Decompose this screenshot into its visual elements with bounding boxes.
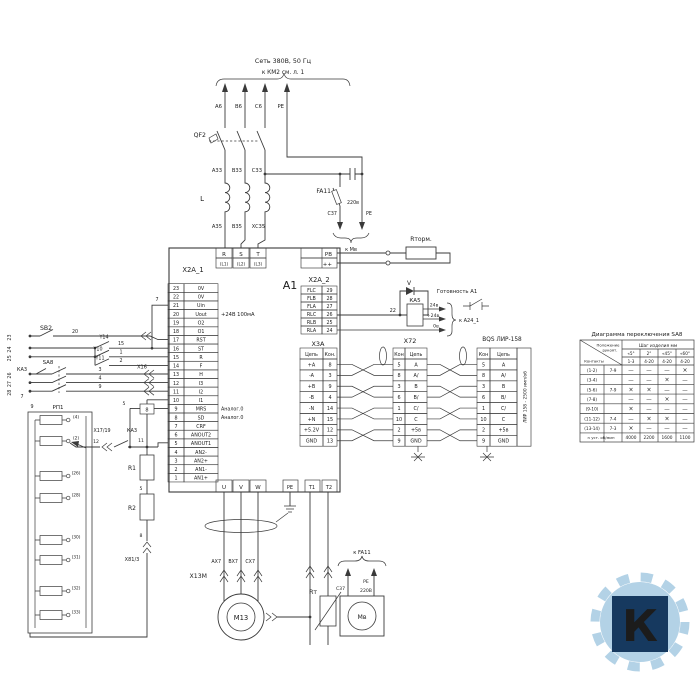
pin-number: 10 xyxy=(173,398,179,404)
wire-label: 9 xyxy=(98,384,101,390)
sa8-rpm-value: 1100 xyxy=(680,435,691,441)
pin-label: O2 xyxy=(198,320,205,326)
pin-number: 18 xyxy=(173,329,179,335)
terminal-label: W xyxy=(255,485,261,491)
pin-number: 6 xyxy=(174,433,177,439)
encoder-title: BQS ЛИР-158 xyxy=(482,337,522,343)
terminal-label: V xyxy=(239,485,243,491)
sa8-mark: — xyxy=(682,426,688,432)
sa8-mark: × xyxy=(664,415,669,422)
rp1-terminal-label: (30) xyxy=(72,535,81,541)
annotation: +24В 100мА xyxy=(221,312,255,318)
wire-label: PE xyxy=(366,211,372,217)
cell-value: 2 xyxy=(397,428,400,434)
col-header: Цепь xyxy=(410,352,423,358)
pin-label: ANOUT2 xyxy=(191,433,211,439)
cell-value: C xyxy=(414,417,418,423)
rp1-terminal xyxy=(66,558,70,562)
terminal-label: U xyxy=(222,485,226,491)
pin-label: I2 xyxy=(199,389,203,395)
cell-value: 8 xyxy=(482,373,485,379)
cell-value: 1 xyxy=(482,406,485,412)
relay-contact-label: КА3 xyxy=(17,367,27,373)
annotation: Аналог.0 xyxy=(221,415,243,421)
resistor-r2 xyxy=(140,494,154,520)
wire-label: В35 xyxy=(232,224,242,230)
wire-label: С37 xyxy=(328,211,337,217)
x72-title: X72 xyxy=(404,337,417,345)
x3a-title: X3A xyxy=(311,340,325,348)
wire-label: 5 xyxy=(123,401,126,407)
dest-label: к Мв xyxy=(345,247,357,253)
wire-label: PE xyxy=(363,579,369,585)
contact-label: Y10 xyxy=(92,347,102,353)
sa8-mark: × xyxy=(628,386,633,393)
wire-label: PE xyxy=(277,104,284,110)
sa8-mark: — xyxy=(664,387,670,393)
cell-value: 2 xyxy=(482,428,485,434)
pin-label: Uin xyxy=(197,303,205,309)
sa8-header: Контакты xyxy=(584,359,604,364)
rail-number: 25 xyxy=(7,355,13,361)
wire-label: 5 xyxy=(140,486,143,492)
terminal-label: PE xyxy=(287,485,293,491)
pin-number: 12 xyxy=(173,381,179,387)
dest-label: к А24_1 xyxy=(459,318,479,324)
cell-value: 10 xyxy=(480,417,486,423)
rp1-terminal xyxy=(66,418,70,422)
cell-value: 5 xyxy=(482,362,485,368)
cell-value: +A xyxy=(308,362,316,368)
sa8-mark: — xyxy=(682,416,688,422)
cell-value: C/ xyxy=(501,406,506,412)
wire-label: 1 xyxy=(119,350,122,356)
logo-letter: К xyxy=(622,601,658,652)
cell-value: +N xyxy=(308,417,316,423)
cell-value: -N xyxy=(309,406,315,412)
pin-number: 20 xyxy=(173,312,179,318)
col-header: Кон. xyxy=(324,352,335,358)
cell-value: 9 xyxy=(328,384,331,390)
col-header: Цепь xyxy=(497,352,510,358)
pin-number: 4 xyxy=(174,450,177,456)
cell-value: -B xyxy=(309,395,315,401)
inductor-label: L xyxy=(200,195,204,203)
pin-number: 5 xyxy=(174,441,177,447)
wire-label: С37 xyxy=(336,586,345,592)
sa8-mark: — xyxy=(628,378,634,384)
connector-label: X17/19 xyxy=(93,428,110,434)
cell-value: GND xyxy=(410,439,421,445)
cell-value: 6 xyxy=(397,395,400,401)
wire-label: В33 xyxy=(232,168,242,174)
cell-value: 13 xyxy=(327,439,333,445)
pin-number: 23 xyxy=(173,286,179,292)
sa8-mark: × xyxy=(628,425,633,432)
pin-number: 25 xyxy=(326,320,332,326)
sa8-col-range: 1-3 xyxy=(628,359,635,364)
cell-value: +5.2V xyxy=(304,428,320,434)
terminal-label: T1 xyxy=(308,485,315,491)
relay-label: КА5 xyxy=(409,298,421,304)
sa8-mark: — xyxy=(646,368,652,374)
sa8-mark: — xyxy=(646,407,652,413)
wire-label: 3 xyxy=(98,367,101,373)
sa8-rpm-value: 2200 xyxy=(644,435,655,441)
wire-label: +24в xyxy=(427,313,440,319)
relay-contact-label: КА3 xyxy=(127,428,137,434)
terminal-label: PB xyxy=(325,252,332,258)
sa8-mark: — xyxy=(682,407,688,413)
sa8-col-header: «45° xyxy=(662,351,672,356)
cell-value: 3 xyxy=(482,384,485,390)
sa8-mark: — xyxy=(628,416,634,422)
cell-value: 9 xyxy=(397,439,400,445)
cell-value: 15 xyxy=(327,417,333,423)
pin-number: 21 xyxy=(173,303,179,309)
wire-label: 24в xyxy=(430,303,439,309)
cell-value: C xyxy=(502,417,506,423)
sa8-mark: — xyxy=(682,378,688,384)
rail-number: 23 xyxy=(7,334,13,340)
pin-label: I3 xyxy=(199,381,203,387)
wire-label: ВХ7 xyxy=(228,559,238,565)
fuse-label: FA11 xyxy=(316,188,331,195)
sa8-mark: — xyxy=(646,426,652,432)
cell-value: 3 xyxy=(328,373,331,379)
wire-label: ХС35 xyxy=(252,224,265,230)
cell-value: GND xyxy=(498,439,509,445)
cell-value: B/ xyxy=(501,395,506,401)
terminal-circle xyxy=(386,261,390,265)
sa8-header: Шаг изделия мм xyxy=(639,343,677,349)
sa8-col-header: «60° xyxy=(680,351,690,356)
ready-label: Готовность А1 xyxy=(437,289,477,295)
sa8-mark: × xyxy=(646,415,651,422)
sa8-contact: 7-3 xyxy=(610,426,617,431)
sa8-mark: × xyxy=(682,367,687,374)
contact-label: Y11 xyxy=(94,356,104,362)
schematic-canvas: Сеть 380В, 50 Гц к КМ2 см. л. 1 А6 В6 С6… xyxy=(0,0,700,700)
terminal-label: ++ xyxy=(323,262,333,268)
rp1-terminal-label: (33) xyxy=(72,610,81,616)
sa8-title: Диаграмма переключения SA8 xyxy=(592,332,683,338)
pin-number: 22 xyxy=(173,295,179,301)
rp1-terminal-label: (4) xyxy=(73,415,79,421)
sa8-contact: (13-14) xyxy=(584,426,600,431)
rp1-label: РП1 xyxy=(53,405,64,411)
sa8-mark: — xyxy=(664,368,670,374)
sa8-contact: (9-10) xyxy=(586,407,599,412)
pin-number: 24 xyxy=(326,328,332,334)
resistor-label: Rторм. xyxy=(410,236,432,243)
terminal-sublabel: (L3) xyxy=(254,262,263,267)
rp1-terminal xyxy=(66,439,70,443)
sa8-mark: — xyxy=(682,397,688,403)
sa8-col-header: 2° xyxy=(647,351,652,356)
sa8-col-header: «5° xyxy=(627,351,634,356)
pin-number: 26 xyxy=(326,312,332,318)
pin-number: 28 xyxy=(326,296,332,302)
sa8-col-range: 4-20 xyxy=(644,359,654,364)
switch-label: SA8 xyxy=(43,360,54,366)
wire-label: А33 xyxy=(212,168,222,174)
sa8-mark: — xyxy=(628,397,634,403)
brand-logo: К xyxy=(595,577,685,667)
cell-value: 12 xyxy=(327,428,333,434)
terminal-circle xyxy=(386,251,390,255)
resistor-label: R2 xyxy=(128,505,136,512)
cell-value: 9 xyxy=(482,439,485,445)
cell-value: 8 xyxy=(397,373,400,379)
sa8-contact: (3-4) xyxy=(587,378,597,383)
sa8-mark: × xyxy=(628,406,633,413)
cell-value: GND xyxy=(306,439,317,445)
voltage-label: 220В xyxy=(360,588,372,594)
pin-label: FLA xyxy=(307,304,317,310)
rail-number: 26 xyxy=(7,372,13,378)
pin-number: 29 xyxy=(326,288,332,294)
x2a2-title: X2A_2 xyxy=(308,276,329,284)
sa8-contact: 7-9 xyxy=(610,387,617,392)
pin-label: SD xyxy=(198,415,205,421)
pin-label: ANOUT1 xyxy=(191,441,211,447)
relay-coil xyxy=(407,304,423,326)
a1-label: А1 xyxy=(283,279,298,292)
pin-label: RST xyxy=(196,338,205,344)
cell-value: -A xyxy=(309,373,315,379)
rail-number: 27 xyxy=(7,381,13,387)
sa8-contact: (11-12) xyxy=(584,416,600,421)
pin-label: ST xyxy=(198,346,204,352)
pin-label: 0V xyxy=(198,295,205,301)
wire-label: СХ7 xyxy=(245,559,255,565)
rail-number: 24 xyxy=(7,346,13,352)
pin-number: 11 xyxy=(173,389,179,395)
resistor-label: R1 xyxy=(128,465,136,472)
thermistor-label: Rт xyxy=(309,589,317,596)
cell-value: +5в xyxy=(411,428,421,434)
wire-label: АХ7 xyxy=(211,559,221,565)
col-header: Кон xyxy=(479,352,488,358)
cell-value: 3 xyxy=(397,384,400,390)
sa8-mark: — xyxy=(682,387,688,393)
wire-label: 12 xyxy=(93,439,99,445)
sa8-contact: 7-9 xyxy=(610,368,617,373)
cell-value: 14 xyxy=(327,406,333,412)
contact-label: Y14 xyxy=(98,335,108,341)
sa8-rpm-label: n уст. об/мин xyxy=(588,435,615,440)
pin-label: I1 xyxy=(199,398,203,404)
pin-number: 17 xyxy=(173,338,179,344)
sa8-header: рукоят. xyxy=(603,348,618,353)
sa8-contact: (1-2) xyxy=(587,368,597,373)
rp1-terminal-label: (26) xyxy=(72,471,81,477)
pin-label: RLA xyxy=(307,328,317,334)
sa8-mark: × xyxy=(646,386,651,393)
breaker-label: QF2 xyxy=(194,132,206,139)
pin-label: O1 xyxy=(198,329,205,335)
dest-label: к FA11 xyxy=(353,550,370,556)
wire-label: 20 xyxy=(72,329,78,335)
sa8-rpm-value: 1600 xyxy=(662,435,673,441)
cell-value: +5в xyxy=(498,428,508,434)
sa8-mark: — xyxy=(646,397,652,403)
pin-number: 1 xyxy=(174,476,177,482)
sa8-col-range: 4-20 xyxy=(680,359,690,364)
pin-label: CRF xyxy=(196,424,206,430)
cell-value: 8 xyxy=(328,362,331,368)
cell-value: A/ xyxy=(414,373,419,379)
pin-label: FLC xyxy=(307,288,316,294)
cell-value: B/ xyxy=(413,395,418,401)
rail-number: 28 xyxy=(7,390,13,396)
connector-label: X81/3 xyxy=(125,557,140,563)
net-label: Сеть 380В, 50 Гц xyxy=(255,58,311,65)
rp1-terminal xyxy=(66,496,70,500)
pin-label: RLC xyxy=(307,312,317,318)
cell-value: C/ xyxy=(413,406,418,412)
pin-number: 16 xyxy=(173,346,179,352)
pin-number: 14 xyxy=(173,364,179,370)
wire-label: 9 xyxy=(30,404,33,410)
x2a1-title: X2A_1 xyxy=(182,266,203,274)
cell-value: 4 xyxy=(328,395,331,401)
pin-number: 9 xyxy=(174,407,177,413)
sa8-contact: (7-8) xyxy=(587,397,597,402)
rp1-terminal xyxy=(66,538,70,542)
rp1-terminal xyxy=(66,589,70,593)
cell-value: 6 xyxy=(482,395,485,401)
wire-label: 8 xyxy=(140,533,143,539)
fan-label: Мв xyxy=(358,614,367,621)
pin-number: 3 xyxy=(174,458,177,464)
wire-label: С6 xyxy=(255,104,263,110)
rp1-terminal xyxy=(66,613,70,617)
wire-label: 22 xyxy=(390,308,396,314)
wire-label: 2 xyxy=(119,358,122,364)
col-header: Кон xyxy=(394,352,403,358)
wire-label: 7 xyxy=(155,297,158,303)
wire-label: С33 xyxy=(252,168,262,174)
sa8-mark: × xyxy=(664,377,669,384)
pin-number: 15 xyxy=(173,355,179,361)
pin-number: 13 xyxy=(173,372,179,378)
sa8-col-range: 4-20 xyxy=(662,359,672,364)
terminal-label: R xyxy=(222,252,226,258)
pin-label: F xyxy=(200,364,203,370)
motor-label: М13 xyxy=(234,614,249,622)
sa8-mark: — xyxy=(628,368,634,374)
rp1-terminal-label: (28) xyxy=(72,493,81,499)
pin-number: 19 xyxy=(173,320,179,326)
wire-label: 4 xyxy=(98,376,101,382)
pin-label: FLB xyxy=(307,296,316,302)
pin-label: MRS xyxy=(196,407,207,413)
cell-value: 10 xyxy=(396,417,402,423)
pin-label: AN1- xyxy=(195,467,207,473)
terminal-sublabel: (L2) xyxy=(237,262,246,267)
rp1-terminal-label: (31) xyxy=(72,555,81,561)
terminal-label: S xyxy=(239,252,243,258)
wire-label: 15 xyxy=(118,341,124,347)
pin-label: RLB xyxy=(307,320,316,326)
sa8-mark: × xyxy=(664,396,669,403)
rp1-terminal xyxy=(66,474,70,478)
wire-label: 7 xyxy=(20,394,23,400)
terminal-label: T2 xyxy=(325,485,332,491)
connector-label: X13M xyxy=(190,573,207,580)
cell-value: A/ xyxy=(501,373,506,379)
wire-label: 8 xyxy=(145,408,148,414)
cell-value: 5 xyxy=(397,362,400,368)
sa8-mark: — xyxy=(646,378,652,384)
cell-value: 1 xyxy=(397,406,400,412)
pin-label: Uout xyxy=(195,312,206,318)
pin-number: 7 xyxy=(174,424,177,430)
resistor-r1 xyxy=(140,455,154,480)
cell-value: +B xyxy=(308,384,316,390)
pin-label: AN1+ xyxy=(194,476,208,482)
sa8-mark: — xyxy=(664,407,670,413)
wire-label: 0в xyxy=(433,324,439,330)
pin-label: AN2+ xyxy=(194,458,208,464)
sa8-contact: 7-4 xyxy=(610,416,617,421)
terminal-sublabel: (L1) xyxy=(220,262,229,267)
pin-label: H xyxy=(199,372,203,378)
sa8-mark: — xyxy=(664,426,670,432)
wire-label: 11 xyxy=(138,438,144,444)
wire-label: В6 xyxy=(235,104,243,110)
sa8-contact: (5-6) xyxy=(587,387,597,392)
page-background xyxy=(0,0,700,700)
connector-label: X16 xyxy=(137,365,147,371)
pin-number: 8 xyxy=(174,415,177,421)
voltage-label: 220в xyxy=(347,200,359,206)
annotation: Аналог.0 xyxy=(221,407,243,413)
pin-number: 27 xyxy=(326,304,332,310)
pin-label: AN2- xyxy=(195,450,207,456)
rp1-terminal-label: (32) xyxy=(72,586,81,592)
wire-label: А6 xyxy=(215,104,223,110)
terminal-label: T xyxy=(255,252,260,258)
wire-label: А35 xyxy=(212,224,222,230)
col-header: Цепь xyxy=(305,352,318,358)
rp1-terminal-label: (2) xyxy=(73,436,79,442)
pin-label: 0V xyxy=(198,286,205,292)
sa8-rpm-value: 4000 xyxy=(626,435,637,441)
pin-number: 2 xyxy=(174,467,177,473)
encoder-side-label: ЛИР 158 - 2500 имп/об xyxy=(522,371,529,423)
